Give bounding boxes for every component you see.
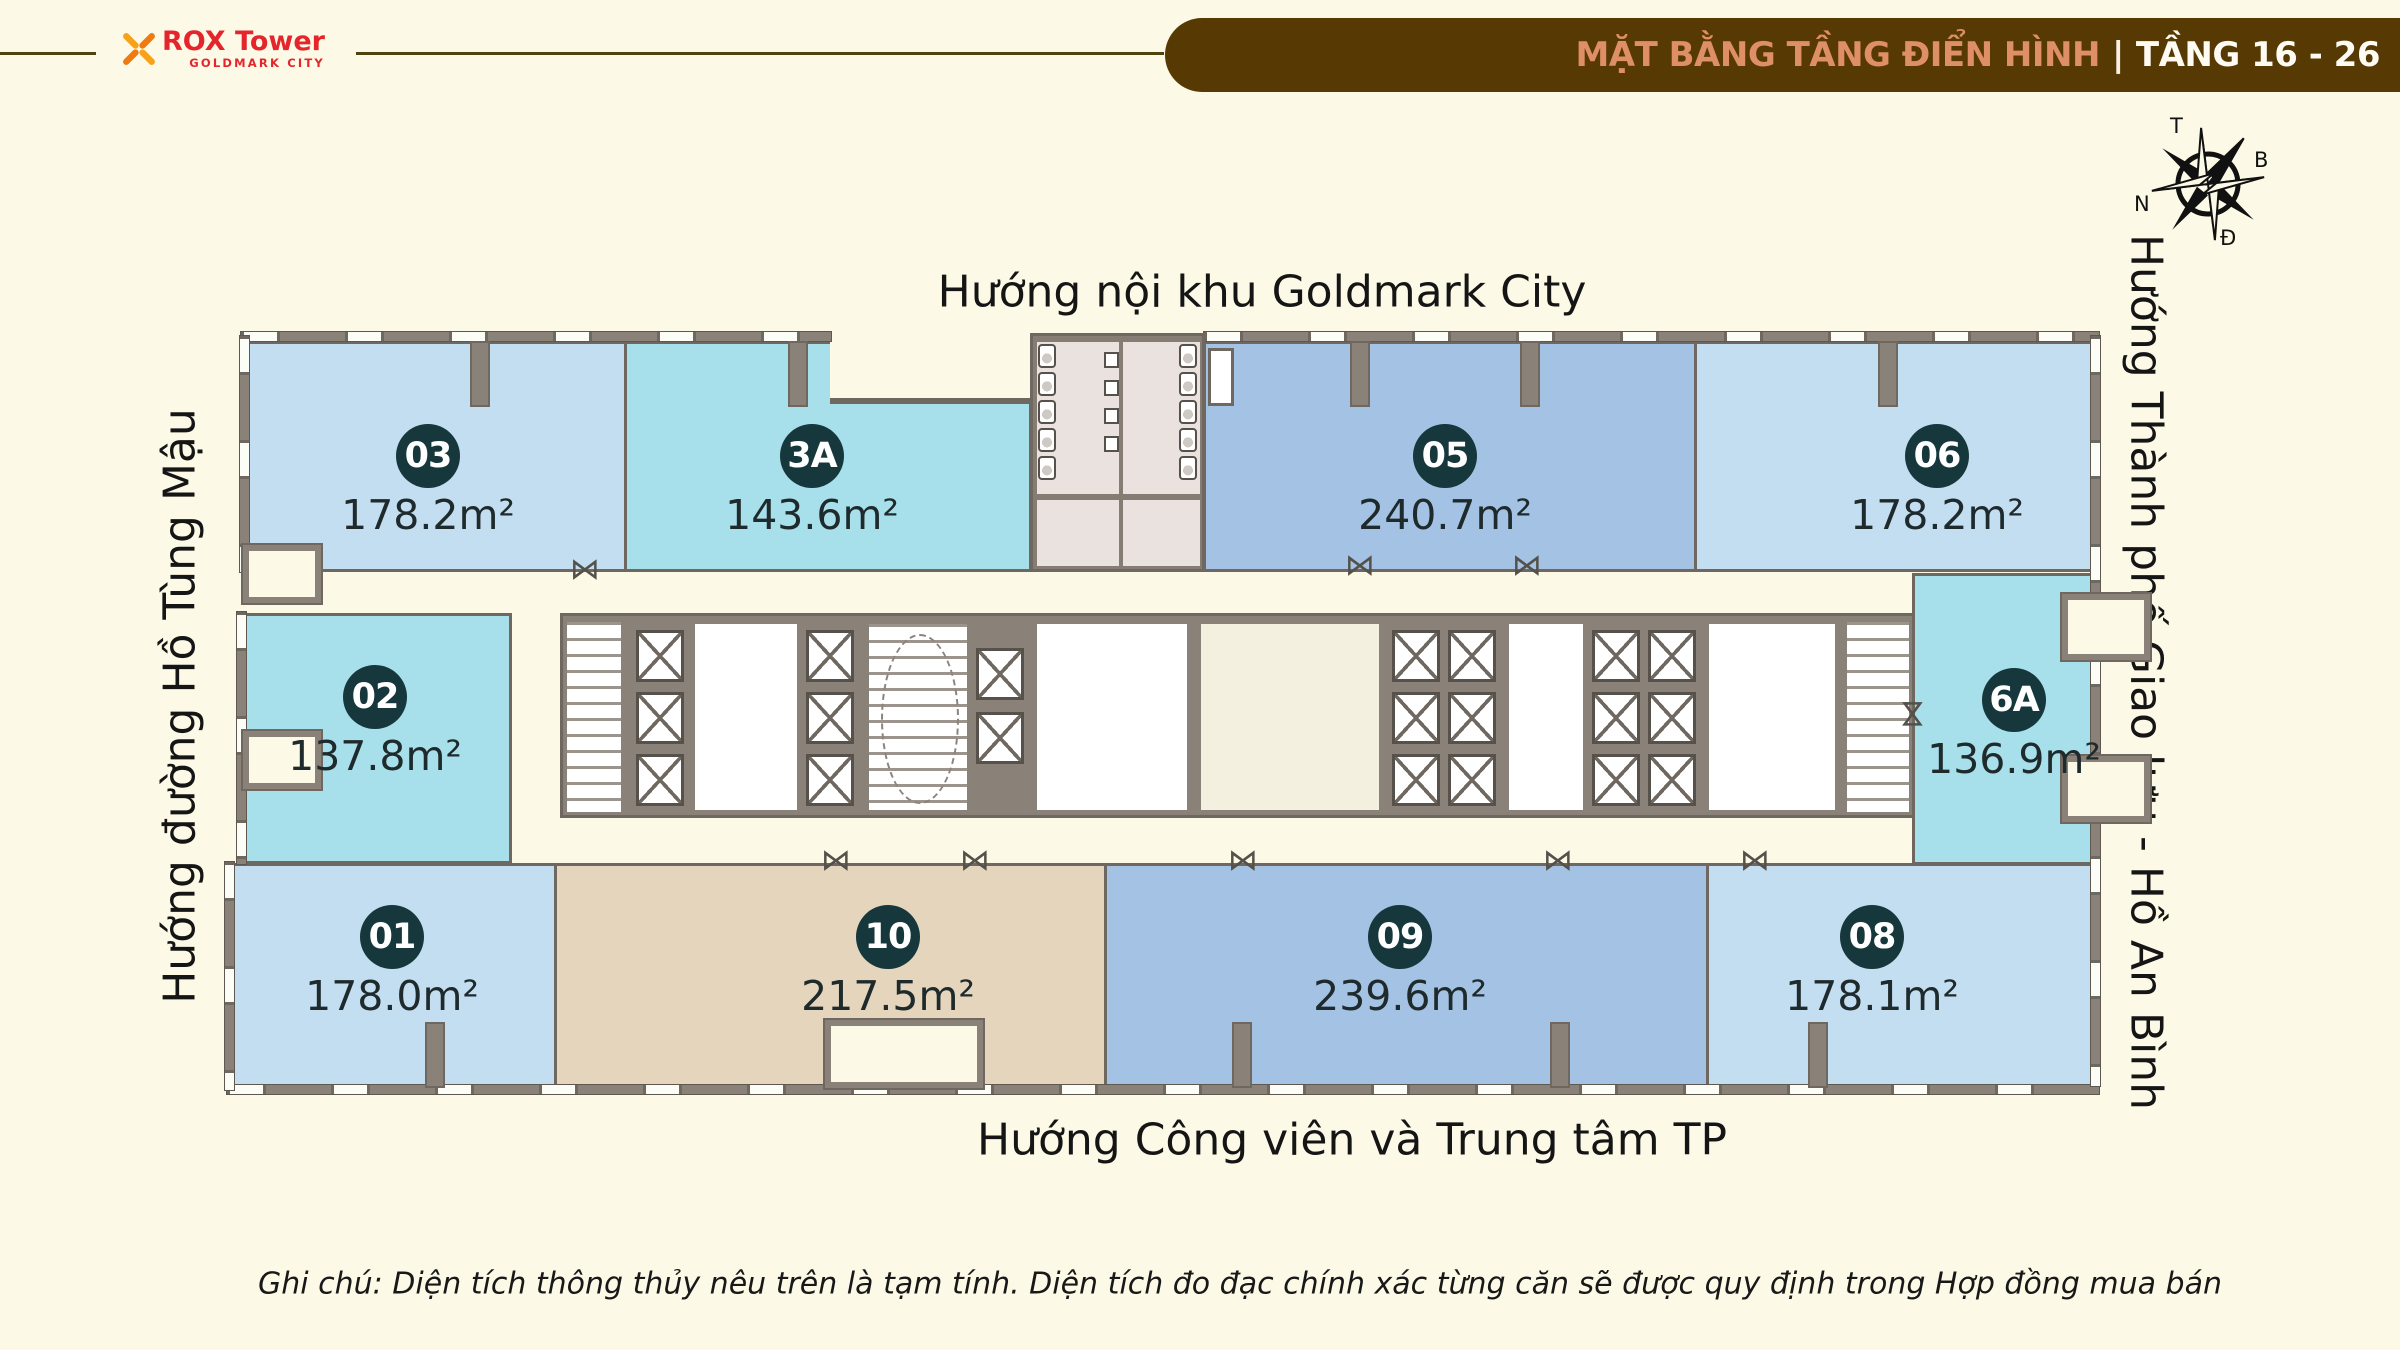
column: [1520, 341, 1540, 407]
toilet-icon: [1179, 400, 1197, 424]
balcony-notch-left-1: [243, 545, 321, 603]
elevator-icon: [1648, 630, 1696, 682]
elevator-icon: [1448, 754, 1496, 806]
door-swing-icon: ⋈: [960, 846, 990, 876]
unit-3A-badge: 3A: [780, 424, 844, 488]
urinal-icon: [1104, 380, 1119, 396]
elevator-icon: [1592, 754, 1640, 806]
core-room: [1709, 624, 1835, 810]
elevator-icon: [636, 754, 684, 806]
unit-6A-area: 136.9m²: [1927, 735, 2101, 783]
column: [1808, 1022, 1828, 1088]
elevator-icon: [1648, 754, 1696, 806]
toilet-icon: [1038, 428, 1056, 452]
toilet-icon: [1038, 372, 1056, 396]
toilet-icon: [1179, 428, 1197, 452]
urinal-icon: [1104, 408, 1119, 424]
restroom-lobby-right: [1123, 500, 1200, 566]
urinal-icon: [1104, 436, 1119, 452]
balcony-notch-unit10: [825, 1020, 983, 1088]
elevator-icon: [1592, 630, 1640, 682]
unit-09-area: 239.6m²: [1313, 972, 1487, 1020]
building-core: [560, 613, 1915, 818]
elevator-icon: [1448, 692, 1496, 744]
core-room: [1037, 624, 1187, 810]
elevator-icon: [1448, 630, 1496, 682]
door-swing-icon: ⋈: [1512, 551, 1542, 581]
outer-wall-right: [2090, 335, 2101, 1087]
unit-02-badge: 02: [343, 665, 407, 729]
outer-wall-top-right: [1203, 331, 2100, 342]
door-swing-icon: ⋈: [570, 555, 600, 585]
unit-05-badge: 05: [1413, 424, 1477, 488]
unit-01-badge: 01: [360, 905, 424, 969]
unit-10-badge: 10: [856, 905, 920, 969]
stair-ellipse: [881, 634, 959, 804]
unit-02-area: 137.8m²: [288, 732, 462, 780]
unit-06-area: 178.2m²: [1850, 491, 2024, 539]
unit-6A-badge: 6A: [1982, 668, 2046, 732]
outer-wall-left-lower: [224, 861, 235, 1091]
unit-08-area: 178.1m²: [1785, 972, 1959, 1020]
outer-wall-left-upper: [239, 335, 250, 573]
unit-01-area: 178.0m²: [305, 972, 479, 1020]
shaft-box: [1208, 348, 1234, 406]
elevator-icon: [976, 712, 1024, 764]
toilet-icon: [1038, 400, 1056, 424]
unit-10-area: 217.5m²: [801, 972, 975, 1020]
door-swing-icon: ⋈: [1345, 551, 1375, 581]
floor-plan: ⋈ ⋈ ⋈ ⋈ ⋈ ⋈ ⋈ ⋈ ⋈ 03 178.2m² 3A 143.6m² …: [0, 0, 2400, 1350]
elevator-icon: [806, 692, 854, 744]
column: [1350, 341, 1370, 407]
unit-03-area: 178.2m²: [341, 491, 515, 539]
column: [788, 341, 808, 407]
column: [1550, 1022, 1570, 1088]
elevator-icon: [806, 630, 854, 682]
elevator-icon: [1592, 692, 1640, 744]
door-swing-icon: ⋈: [1740, 846, 1770, 876]
footnote: Ghi chú: Diện tích thông thủy nêu trên l…: [258, 1267, 2222, 1302]
facade-inset: [830, 330, 1032, 404]
urinal-icon: [1104, 352, 1119, 368]
unit-09-badge: 09: [1368, 905, 1432, 969]
elevator-icon: [636, 692, 684, 744]
unit-06-badge: 06: [1905, 424, 1969, 488]
column: [1878, 341, 1898, 407]
elevator-icon: [1392, 630, 1440, 682]
elevator-icon: [636, 630, 684, 682]
core-room: [1509, 624, 1583, 810]
unit-05-area: 240.7m²: [1358, 491, 1532, 539]
toilet-icon: [1179, 372, 1197, 396]
balcony-notch-right-1: [2062, 594, 2150, 660]
column: [470, 341, 490, 407]
toilet-icon: [1038, 456, 1056, 480]
unit-3A-area: 143.6m²: [725, 491, 899, 539]
door-swing-icon: ⋈: [1543, 846, 1573, 876]
toilet-icon: [1179, 456, 1197, 480]
door-swing-icon: ⋈: [1228, 846, 1258, 876]
stairwell-left: [567, 622, 621, 812]
elevator-icon: [806, 754, 854, 806]
toilet-icon: [1179, 344, 1197, 368]
toilet-icon: [1038, 344, 1056, 368]
column: [1232, 1022, 1252, 1088]
elevator-icon: [1648, 692, 1696, 744]
unit-03-badge: 03: [396, 424, 460, 488]
core-room: [1201, 624, 1379, 810]
page: ROX Tower GOLDMARK CITY MẶT BẰNG TẦNG ĐI…: [0, 0, 2400, 1350]
door-swing-icon: ⋈: [821, 846, 851, 876]
restroom-block: [1030, 333, 1205, 572]
column: [425, 1022, 445, 1088]
elevator-icon: [976, 648, 1024, 700]
elevator-lobby: [695, 624, 797, 810]
restroom-lobby-left: [1037, 500, 1119, 566]
door-swing-icon: ⋈: [1897, 699, 1927, 729]
unit-08-badge: 08: [1840, 905, 1904, 969]
elevator-icon: [1392, 692, 1440, 744]
elevator-icon: [1392, 754, 1440, 806]
outer-wall-top-left: [240, 331, 832, 342]
